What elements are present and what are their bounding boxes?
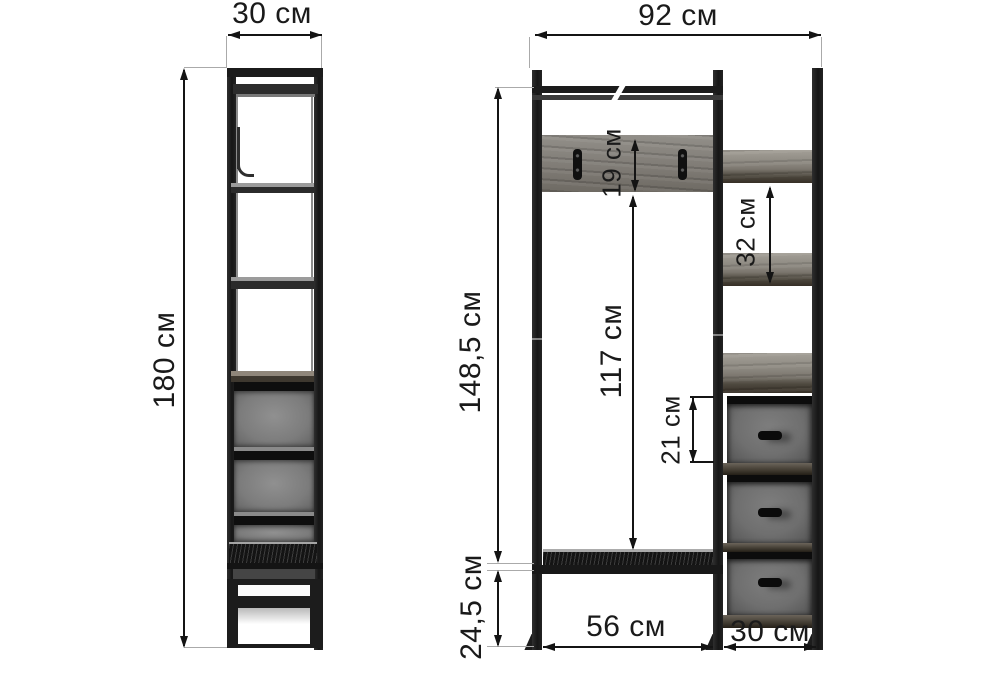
arrowhead-left — [535, 31, 547, 39]
arrowhead-down — [766, 272, 774, 284]
hook-panel-height-label: 19 см — [597, 128, 628, 198]
arrowhead-up — [494, 87, 502, 99]
base-height-label: 24,5 см — [455, 554, 489, 660]
arrowhead-up — [766, 186, 774, 198]
arrowhead-down — [180, 636, 188, 648]
extension-line — [184, 647, 227, 648]
opening-width-label: 56 см — [586, 610, 666, 644]
arrowhead-down — [689, 450, 697, 462]
extension-line — [184, 67, 227, 68]
dimension-line — [724, 646, 816, 648]
dimension-line — [543, 646, 713, 648]
arrowhead-right — [809, 31, 821, 39]
dimension-line — [183, 70, 185, 646]
dimension-line — [535, 34, 821, 36]
dimensions-layer: 30 см 180 см 92 см 148,5 см — [0, 0, 1000, 700]
arrowhead-up — [494, 570, 502, 582]
extension-line — [226, 36, 227, 68]
front-width-label: 92 см — [638, 0, 718, 33]
drawer-height-label: 21 см — [656, 395, 687, 465]
extension-line — [321, 36, 322, 68]
side-height-label: 180 см — [148, 311, 182, 408]
shelf-gap-label: 32 см — [731, 197, 762, 267]
arrowhead-down — [494, 551, 502, 563]
extension-line — [487, 563, 534, 564]
dimension-line — [632, 197, 634, 548]
arrowhead-down — [629, 538, 637, 550]
dimension-line — [497, 89, 499, 561]
arrowhead-down — [631, 180, 639, 192]
arrowhead-left — [543, 643, 555, 651]
arrowhead-left — [724, 643, 736, 651]
extension-line — [529, 37, 530, 68]
arrowhead-up — [180, 68, 188, 80]
extension-line — [821, 37, 822, 67]
furniture-dimension-diagram: 30 см 180 см 92 см 148,5 см — [0, 0, 1000, 700]
arrowhead-up — [689, 398, 697, 410]
dimension-line — [769, 188, 771, 282]
dimension-line — [228, 34, 322, 36]
arrowhead-up — [631, 139, 639, 151]
arrowhead-left — [228, 31, 240, 39]
arrowhead-down — [494, 635, 502, 647]
column-width-label: 30 см — [730, 615, 810, 649]
inner-height-label: 117 см — [595, 304, 629, 399]
arrowhead-right — [701, 643, 713, 651]
side-width-label: 30 см — [232, 0, 312, 31]
arrowhead-up — [629, 195, 637, 207]
front-height-label: 148,5 см — [454, 290, 488, 413]
arrowhead-right — [804, 643, 816, 651]
